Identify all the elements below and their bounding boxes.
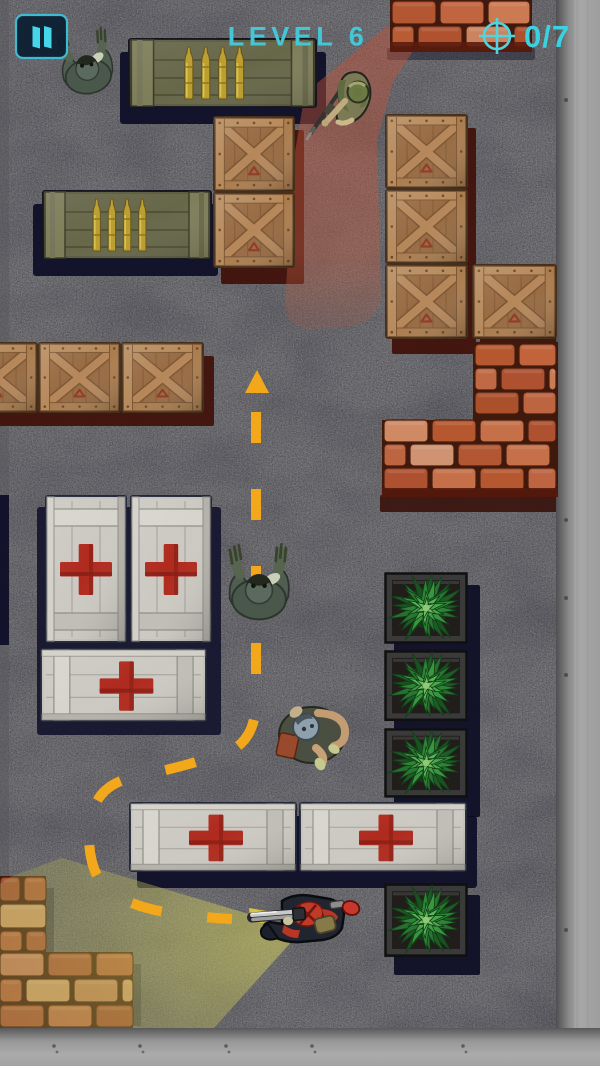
svg-text:LEVEL 6: LEVEL 6	[228, 22, 369, 52]
svg-text:0/7: 0/7	[524, 19, 570, 54]
